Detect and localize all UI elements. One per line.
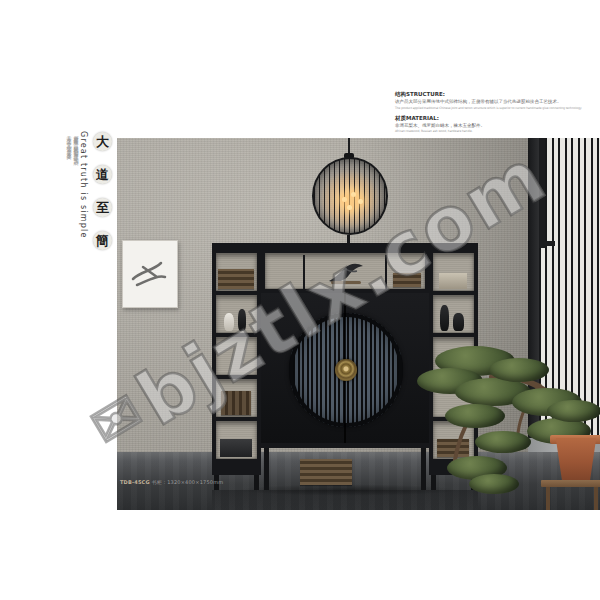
storage-box [220, 439, 252, 457]
floor-books [300, 459, 352, 485]
material-text-en: African rosewood, Russian ash wood, hard… [395, 129, 595, 133]
product-photo: TDB-45CG 书柜：1320×400×1750mm [117, 138, 600, 510]
catalog-page: 结构STRUCTURE: 该产品大部分采用传统中式卯榫结构，正侧带有辅以了当代先… [0, 0, 600, 600]
books [221, 391, 251, 415]
spec-text-block: 结构STRUCTURE: 该产品大部分采用传统中式卯榫结构，正侧带有辅以了当代先… [395, 91, 595, 138]
storage-box [439, 273, 467, 289]
pendant-lamp-cage [312, 157, 388, 235]
lamp-bulb [342, 197, 347, 202]
bird-sculpture [323, 259, 369, 285]
cabinet-doors [261, 293, 429, 445]
shelf-cell [216, 253, 257, 291]
side-title-english: Great truth is simple [79, 131, 88, 251]
bonsai-foliage [489, 358, 549, 382]
vase [440, 305, 449, 331]
structure-text-cn: 该产品大部分采用传统中式卯榫结构，正侧带有辅以了当代先进胶粘接合工艺技术。 [395, 99, 595, 104]
bonsai-foliage [445, 404, 505, 428]
lattice-post [539, 138, 545, 248]
stool-leg [546, 487, 550, 510]
side-title-char-2: 道 [93, 165, 112, 184]
material-text-cn: 非洲花梨木、俄罗斯白蜡木，橡木五金配件。 [395, 123, 595, 128]
shelf-cell [433, 253, 474, 291]
shelf-cell [265, 253, 425, 289]
bonsai-foliage [469, 474, 519, 494]
shelf-cell [216, 337, 257, 375]
lamp-bulb [351, 192, 356, 197]
cabinet-leg [264, 448, 269, 490]
shelf-cell [216, 379, 257, 417]
bonsai-foliage [547, 400, 600, 422]
books [218, 269, 254, 289]
shelf-cell [216, 295, 257, 333]
abstract-art [123, 241, 175, 303]
books [393, 273, 421, 287]
shelf-divider [385, 255, 387, 289]
vase [238, 309, 246, 331]
lamp-bulb [347, 205, 352, 210]
cabinet-bottom-rail [261, 443, 429, 448]
lamp-bulb [358, 199, 363, 204]
shelf-cell [216, 421, 257, 459]
side-title-char-3: 至 [93, 198, 112, 217]
cabinet-floor-reflection [212, 490, 478, 510]
product-dimensions: 书柜：1320×400×1750mm [152, 479, 224, 485]
side-caption-column-1: 摒弃繁复雕琢 以极简线条勾勒东方意境 气韵天成 [73, 131, 79, 231]
product-code: TDB-45CG [120, 479, 150, 485]
plant-stool [541, 480, 600, 487]
cabinet-center-top-shelf [261, 247, 429, 293]
shelf-divider [303, 255, 305, 289]
material-heading: 材质MATERIAL: [395, 115, 595, 122]
side-caption-column-2: 于方寸之间 见天地之宽 显大雅之美 [66, 131, 72, 207]
vase [224, 313, 234, 331]
shelf-cell [433, 295, 474, 333]
framed-artwork [122, 240, 178, 308]
bonsai-foliage [475, 431, 531, 453]
brass-medallion [335, 359, 357, 381]
cabinet-leg [254, 475, 259, 490]
side-title-characters: 大 道 至 簡 [93, 132, 112, 264]
product-caption: TDB-45CG 书柜：1320×400×1750mm [120, 479, 223, 485]
vase [453, 313, 464, 331]
stool-leg [594, 487, 598, 510]
structure-heading: 结构STRUCTURE: [395, 91, 595, 98]
lattice-rail [539, 241, 555, 246]
side-title-char-1: 大 [93, 132, 112, 151]
side-title-char-4: 簡 [93, 231, 112, 250]
cabinet-left-tower [212, 247, 261, 475]
structure-text-en: The product applied traditional Chinese … [395, 106, 595, 110]
